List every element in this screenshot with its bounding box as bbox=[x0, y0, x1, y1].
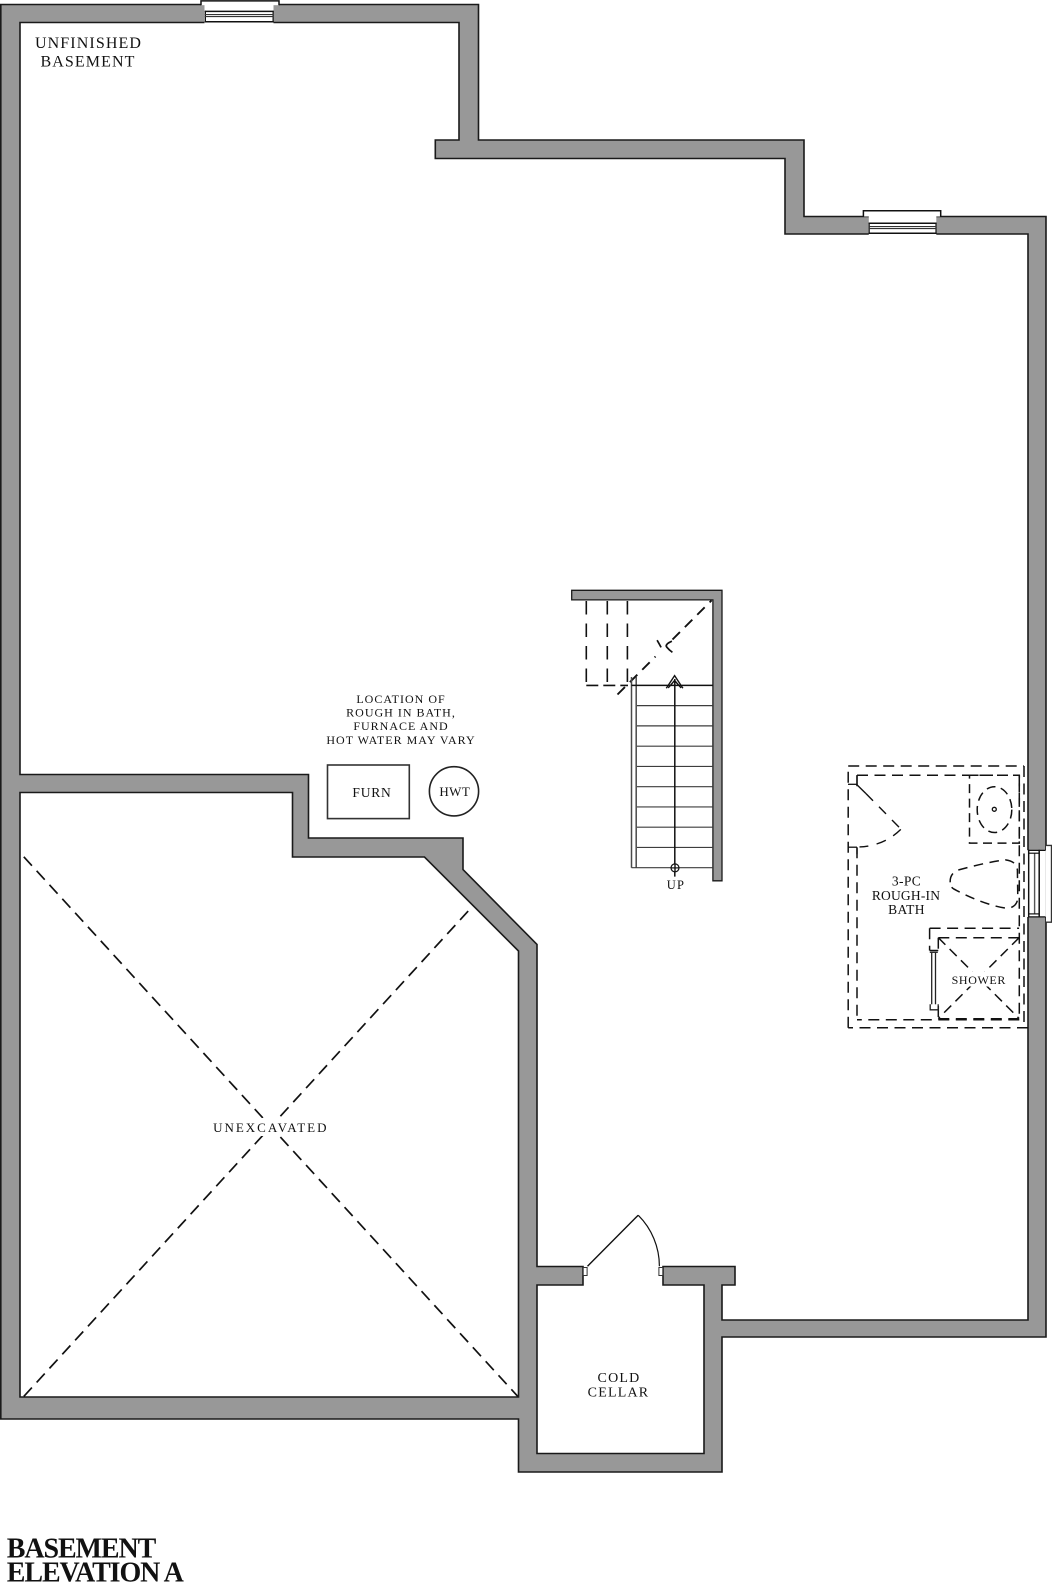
svg-text:FURN: FURN bbox=[352, 785, 391, 800]
svg-text:ELEVATION A: ELEVATION A bbox=[7, 1558, 185, 1589]
svg-text:COLD: COLD bbox=[598, 1371, 641, 1386]
svg-text:3-PC: 3-PC bbox=[892, 874, 921, 889]
svg-text:FURNACE AND: FURNACE AND bbox=[353, 719, 448, 733]
svg-text:BATH: BATH bbox=[888, 902, 925, 917]
svg-text:HWT: HWT bbox=[439, 784, 470, 799]
svg-text:ROUGH IN BATH,: ROUGH IN BATH, bbox=[346, 706, 456, 720]
svg-text:SHOWER: SHOWER bbox=[952, 973, 1006, 987]
svg-text:CELLAR: CELLAR bbox=[588, 1386, 650, 1401]
svg-text:UNFINISHED: UNFINISHED bbox=[35, 35, 142, 52]
svg-text:UNEXCAVATED: UNEXCAVATED bbox=[213, 1120, 328, 1135]
svg-text:BASEMENT: BASEMENT bbox=[40, 53, 135, 70]
svg-text:ROUGH-IN: ROUGH-IN bbox=[872, 888, 940, 903]
svg-text:LOCATION OF: LOCATION OF bbox=[356, 692, 445, 706]
svg-text:UP: UP bbox=[667, 878, 685, 892]
svg-text:HOT WATER MAY VARY: HOT WATER MAY VARY bbox=[326, 733, 475, 747]
